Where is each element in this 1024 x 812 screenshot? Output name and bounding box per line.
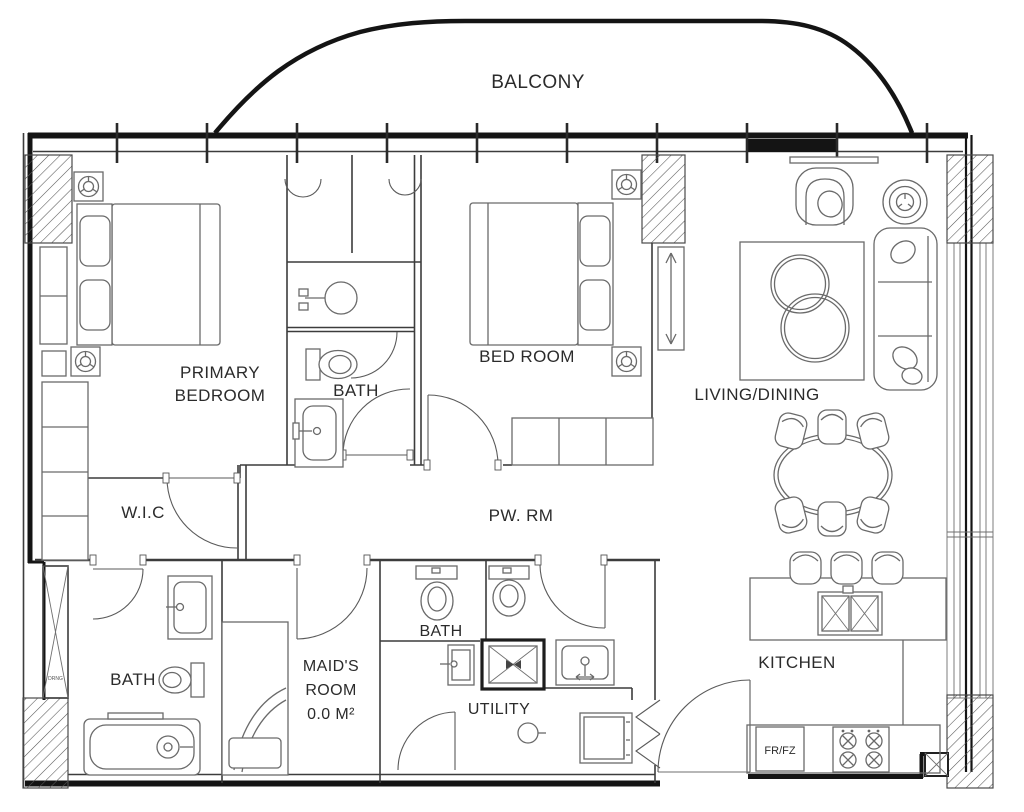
- double-bed-icon: [470, 203, 613, 345]
- side-table-lamp-icon: [883, 180, 927, 224]
- washing-machine-icon: [580, 713, 632, 763]
- maids-room-label-line2: ROOM: [305, 682, 356, 699]
- primary-bedroom-label-line2: BEDROOM: [175, 386, 266, 405]
- maids-room-door-icon: [297, 568, 367, 639]
- toilet-icon: [489, 566, 529, 616]
- ensuite-bath-fixtures: [293, 282, 357, 467]
- dining-chairs: [773, 410, 890, 536]
- entry-door-icon: [658, 680, 750, 772]
- armchair-icon: [796, 168, 853, 225]
- sofa-icon: [874, 228, 937, 390]
- kitchen-label: KITCHEN: [758, 653, 835, 672]
- wic-label: W.I.C: [121, 503, 165, 522]
- shower-door-icon: [351, 332, 397, 378]
- nightstand-lamp-icon: [612, 347, 641, 376]
- balcony-label: BALCONY: [491, 72, 585, 93]
- column-bottom-right: [947, 695, 993, 788]
- toilet-icon: [306, 349, 357, 380]
- fridge-freezer-icon: FR/FZ: [756, 727, 804, 771]
- column-top-left: [25, 155, 72, 243]
- fridge-freezer-label: FR/FZ: [764, 745, 795, 757]
- wic-door-icon: [167, 478, 237, 548]
- right-window-band: [947, 243, 993, 698]
- closet-row-icon: [512, 418, 653, 465]
- bedroom-door-icon: [428, 395, 498, 465]
- drainage-shaft: DRNG: [43, 566, 68, 698]
- floor-plan-page: DRNG: [0, 0, 1024, 812]
- floor-plan-canvas: DRNG: [0, 0, 1024, 812]
- maids-room-label-line1: MAID'S: [303, 658, 359, 675]
- console-icon: [790, 157, 878, 163]
- basin-icon: [556, 640, 614, 685]
- utility-label: UTILITY: [468, 701, 530, 718]
- bar-stools: [790, 552, 903, 584]
- ensuite-bath-label: BATH: [333, 381, 379, 400]
- primary-bedroom-label-line1: PRIMARY: [180, 363, 260, 382]
- shower-head-icon: [299, 282, 357, 314]
- column-top-right: [947, 155, 993, 243]
- toilet-icon: [416, 566, 457, 620]
- shower-tray-icon: [482, 640, 544, 689]
- bifold-door-icon: [636, 700, 660, 768]
- coffee-table-icon: [740, 242, 864, 380]
- maids-room-area-label: 0.0 M²: [307, 706, 355, 723]
- utility-door-icon: [398, 712, 455, 770]
- nook-arc-right: [389, 179, 421, 195]
- wet-rooms-fixtures: [416, 566, 632, 763]
- primary-bath-door-icon: [93, 569, 143, 619]
- wall-basin-icon: [440, 645, 474, 685]
- solid-wall-segment: [747, 139, 837, 152]
- primary-bath-label: BATH: [110, 670, 156, 689]
- nightstand-lamp-icon: [71, 347, 100, 376]
- nook-arc-left: [285, 179, 321, 197]
- bathtub-icon: [84, 713, 200, 775]
- single-bed-icon: [222, 622, 288, 775]
- powder-room-label: PW. RM: [489, 506, 554, 525]
- drainage-label: DRNG: [48, 676, 63, 682]
- floor-drain-icon: [518, 723, 546, 743]
- column-mid-top: [642, 155, 685, 243]
- living-dining-label: LIVING/DINING: [694, 385, 819, 404]
- vanity-sink-icon: [166, 576, 212, 639]
- powder-room-door-icon: [540, 565, 605, 628]
- living-dining-furniture: [740, 157, 937, 536]
- nightstand-lamp-icon: [612, 170, 641, 199]
- toilet-icon: [159, 663, 204, 697]
- stove-icon: [833, 727, 889, 772]
- nightstand-lamp-icon: [74, 172, 103, 201]
- column-bottom-left: [23, 698, 68, 788]
- sliding-door-icon: [658, 247, 684, 350]
- maid-bath-label: BATH: [419, 623, 462, 640]
- vanity-sink-icon: [293, 399, 343, 467]
- maids-room-furniture: [222, 622, 288, 775]
- double-bed-icon: [77, 204, 220, 345]
- double-sink-icon: [818, 586, 882, 635]
- room-labels: BALCONY PRIMARY BEDROOM BATH BED ROOM LI…: [110, 72, 836, 723]
- bedroom-label: BED ROOM: [479, 347, 575, 366]
